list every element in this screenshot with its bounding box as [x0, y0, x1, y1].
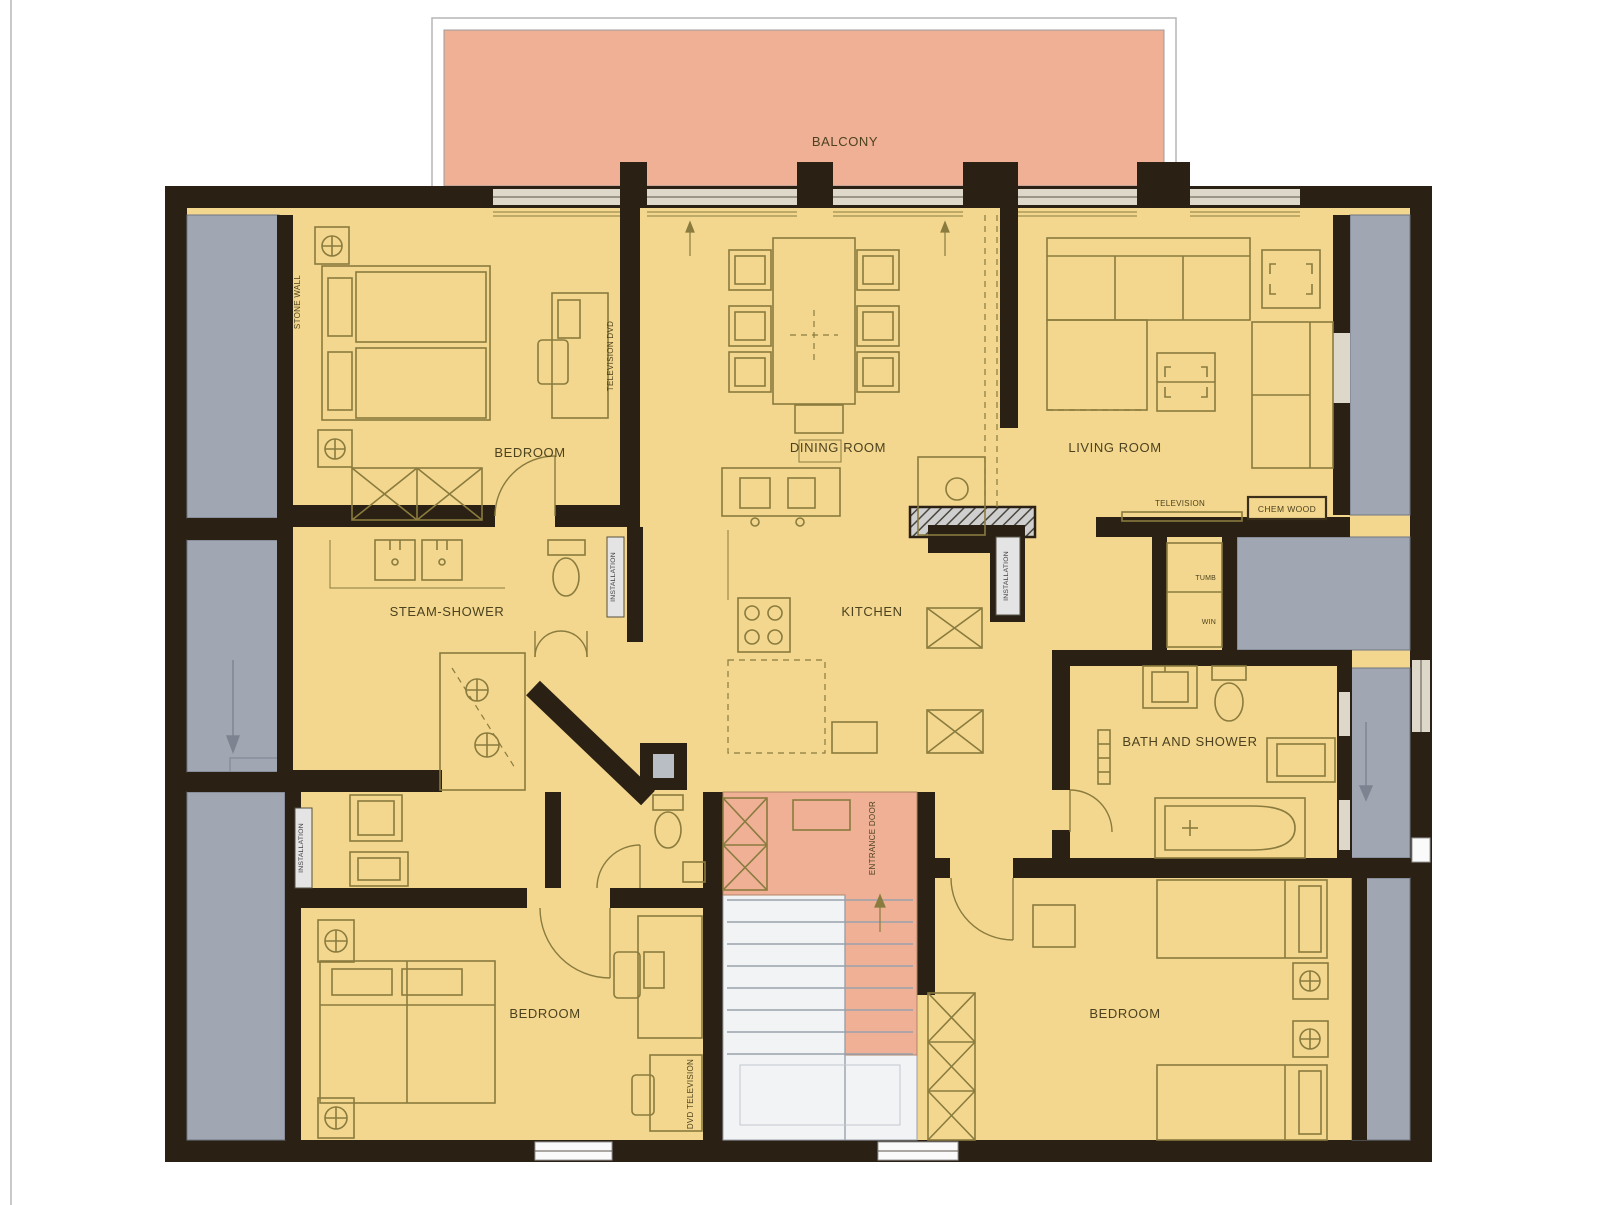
roof-space — [187, 215, 279, 518]
roof-space — [1350, 668, 1410, 858]
balcony-pillar — [797, 162, 833, 188]
lamp-icon — [325, 439, 345, 459]
roof-space — [1237, 537, 1410, 650]
roof-space — [1350, 215, 1410, 515]
chimney-flue — [653, 754, 674, 778]
balcony-label: BALCONY — [812, 134, 878, 149]
entrance-stairs: ENTRANCE DOOR — [723, 792, 917, 1140]
lamp-icon — [322, 236, 342, 256]
balcony-pillar — [1137, 162, 1190, 188]
bedroom-top-left-label: BEDROOM — [494, 445, 565, 460]
steam-shower-label: STEAM-SHOWER — [390, 604, 505, 619]
lamp-icon — [1300, 971, 1320, 991]
balcony-pillar — [963, 162, 1018, 188]
living-room-label: LIVING ROOM — [1068, 440, 1161, 455]
installation-label: INSTALLATION — [298, 823, 305, 873]
balcony-pillar — [620, 162, 647, 188]
lamp-icon — [325, 1107, 347, 1129]
tumb-label: TUMB — [1195, 575, 1216, 582]
dvd-television-label: DVD TELEVISION — [686, 1059, 695, 1129]
television-label: TELEVISION — [1155, 499, 1205, 508]
entrance-door-label: ENTRANCE DOOR — [868, 801, 877, 875]
installation-label: INSTALLATION — [1003, 551, 1010, 601]
roof-space — [187, 792, 285, 1140]
dining-room-label: DINING ROOM — [790, 440, 886, 455]
television-dvd-label: TELEVISION DVD — [606, 321, 615, 391]
installation-label: INSTALLATION — [610, 552, 617, 602]
kitchen-label: KITCHEN — [841, 604, 902, 619]
lamp-icon — [325, 930, 347, 952]
bedroom-bottom-right-label: BEDROOM — [1089, 1006, 1160, 1021]
lamp-icon — [1300, 1029, 1320, 1049]
bath-label: BATH AND SHOWER — [1122, 734, 1257, 749]
floor-plan: BALCONY — [0, 0, 1606, 1205]
floor-plan-page: BALCONY — [0, 0, 1606, 1205]
bedroom-bottom-left-label: BEDROOM — [509, 1006, 580, 1021]
win-label: WIN — [1202, 619, 1216, 626]
chem-wood-label: CHEM WOOD — [1258, 504, 1316, 514]
shower-head-icon — [466, 679, 488, 701]
stone-wall-label: STONE WALL — [293, 275, 302, 329]
